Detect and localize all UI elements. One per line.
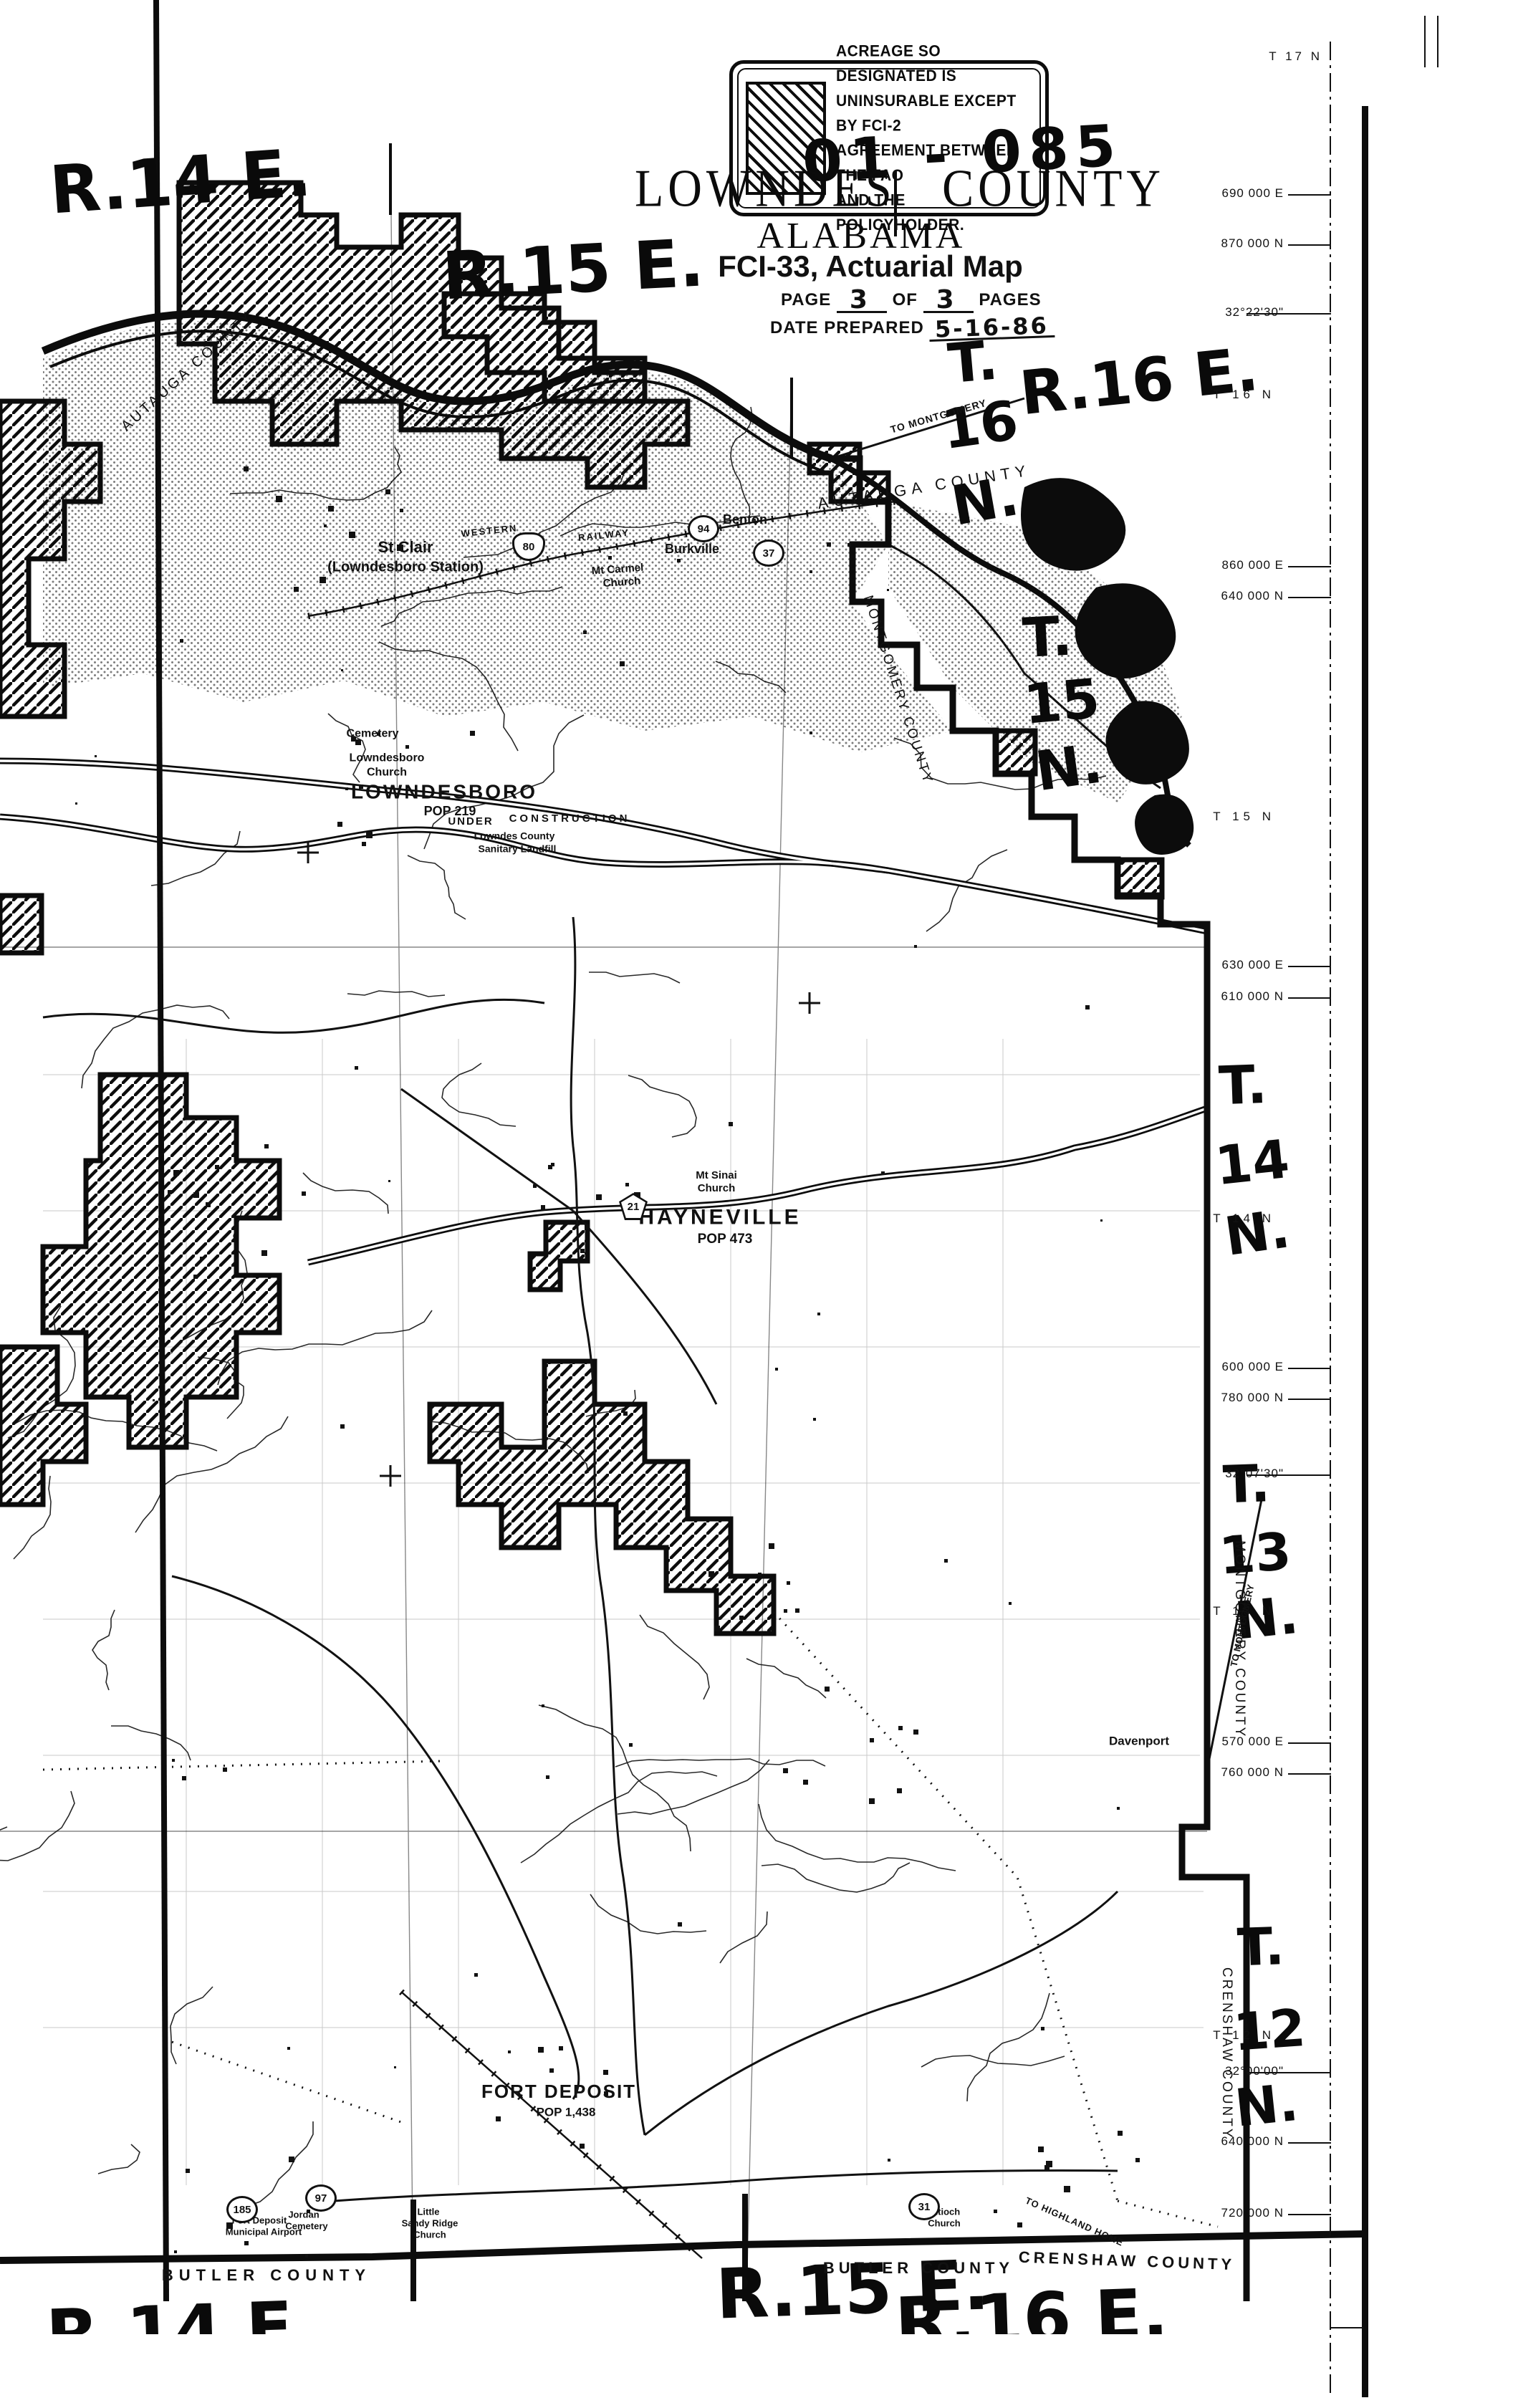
- page-number: 3: [837, 289, 887, 313]
- to-highland-home: TO HIGHLAND HOME: [1024, 2195, 1125, 2248]
- mt-sinai-1: Mt Sinai: [696, 1169, 737, 1181]
- route-94-shield: 94: [688, 515, 719, 542]
- butler-county-e: BUTLER COUNTY: [823, 2259, 1014, 2278]
- construction-label: CONSTRUCTION: [509, 812, 630, 825]
- mt-sinai-2: Church: [698, 1182, 736, 1194]
- range-15e: R.15 E.: [441, 224, 706, 315]
- lowndesboro-name: LOWNDESBORO: [351, 780, 537, 803]
- montgomery-county-ne: MONTGOMERY COUNTY: [860, 593, 936, 786]
- little-sandy-1: Little: [417, 2206, 439, 2217]
- twp-13n-13: 13: [1217, 1521, 1293, 1586]
- jordan-cem-2: Cemetery: [285, 2220, 327, 2231]
- pages-label: PAGES: [979, 290, 1041, 310]
- route-80-shield: 80: [512, 532, 545, 561]
- twp-15n-t: T.: [1021, 604, 1074, 670]
- little-sandy-2: Sandy Ridge: [402, 2217, 458, 2228]
- twp-15n-n: N.: [1032, 731, 1106, 803]
- route-97-shield: 97: [305, 2184, 337, 2212]
- hayneville-name: HAYNEVILLE: [638, 1205, 801, 1229]
- lowndesboro-church-2: Church: [367, 767, 407, 780]
- st-clair: St Clair: [378, 538, 433, 557]
- fort-deposit-name: FORT DEPOSIT: [481, 2081, 636, 2103]
- map-title-county: LOWNDES COUNTY: [635, 158, 1165, 219]
- fort-deposit-pop: POP 1,438: [537, 2105, 596, 2119]
- range-16e: R.16 E.: [1017, 334, 1262, 428]
- butler-county-w: BUTLER COUNTY: [162, 2266, 371, 2285]
- route-21-number: 21: [621, 1195, 645, 1218]
- map-type: FCI-33, Actuarial Map: [718, 249, 1023, 284]
- date-line: DATE PREPARED 5-16-86: [770, 315, 1055, 338]
- page-label: PAGE: [781, 290, 831, 310]
- twp-14n-t: T.: [1218, 1054, 1268, 1117]
- twp-13n-t: T.: [1222, 1453, 1271, 1515]
- western-rr: WESTERN: [461, 522, 518, 539]
- lowndesboro-church-1: Lowndesboro: [350, 752, 425, 765]
- benton: Benton: [723, 512, 767, 527]
- twp-12n-12: 12: [1231, 1997, 1307, 2063]
- route-37-shield: 37: [753, 539, 784, 567]
- date-prepared-label: DATE PREPARED: [770, 318, 924, 337]
- range-14e: R.14 E.: [47, 134, 314, 229]
- scan-cutoff-strip: [0, 2334, 1322, 2408]
- crenshaw-county-e: CRENSHAW COUNTY: [1219, 1967, 1234, 2140]
- burkville: Burkville: [665, 542, 719, 557]
- davenport: Davenport: [1109, 1734, 1169, 1748]
- crenshaw-county-s: CRENSHAW COUNTY: [1018, 2248, 1235, 2275]
- cemetery-lowndesboro: Cemetery: [347, 728, 399, 741]
- antioch-2: Church: [928, 2217, 961, 2228]
- twp-12n-t: T.: [1236, 1916, 1285, 1977]
- lowndesboro-station: (Lowndesboro Station): [327, 560, 484, 576]
- landfill-2: Sanitary Landfill: [479, 843, 557, 855]
- pages-number: 3: [923, 289, 974, 313]
- twp-15n-15: 15: [1021, 666, 1102, 737]
- landfill-1: Lowndes County: [474, 830, 555, 842]
- hayneville-pop: POP 473: [698, 1232, 753, 1247]
- map-label-layer: R.14 E.R.15 E.R.16 E.T.16N.T.15N.T.14N.T…: [0, 0, 1513, 2408]
- mt-carmel-2: Church: [602, 575, 641, 590]
- twp-12n-n: N.: [1232, 2072, 1301, 2139]
- page-line: PAGE 3 OF 3 PAGES: [781, 287, 1042, 310]
- date-prepared-value: 5-16-86: [929, 315, 1055, 342]
- under-label: UNDER: [448, 815, 493, 828]
- railway-rr: RAILWAY: [577, 527, 630, 543]
- twp-14n-n: N.: [1221, 1198, 1293, 1268]
- actuarial-map-page: R.14 E.R.15 E.R.16 E.T.16N.T.15N.T.14N.T…: [0, 0, 1513, 2408]
- of-label: OF: [893, 290, 918, 310]
- route-185-shield: 185: [226, 2196, 258, 2223]
- little-sandy-3: Church: [413, 2229, 446, 2240]
- twp-14n-14: 14: [1212, 1128, 1292, 1197]
- route-31-shield: 31: [908, 2193, 940, 2220]
- autauga-county-nw: AUTAUGA COUNTY: [118, 307, 257, 435]
